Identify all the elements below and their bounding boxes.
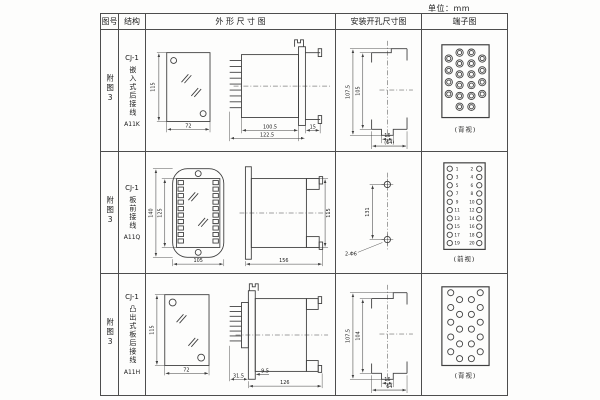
svg-text:17: 17: [454, 232, 460, 237]
terminal-drawing-cell: (背视): [422, 274, 508, 396]
outline-drawing-cell: 115 72 100.5: [146, 30, 336, 152]
terminal-screws: [445, 49, 486, 110]
svg-text:12: 12: [469, 207, 475, 212]
dim-notch-width: 16: [384, 377, 390, 383]
header-structure: 结构: [119, 14, 146, 30]
dim-side-height: 115: [326, 208, 332, 217]
side-view: 156 115: [240, 166, 332, 265]
terminal-drawing-a11q: 1 3 5 7 9 11 13 15 17 19 2 4 6 8 10: [422, 153, 507, 273]
dim-front-width: 72: [183, 367, 189, 373]
outline-drawing-a11k: 115 72 100.5: [146, 31, 335, 151]
fig-no-cell: 附图3: [101, 274, 119, 396]
terminal-strips: [178, 180, 218, 243]
structure-cell: CJ-1 嵌入式后接线 A11K: [119, 30, 146, 152]
dim-cutout-outer-height: 107.5: [345, 84, 351, 98]
outline-drawing-a11q: 140 125 105: [146, 153, 335, 273]
model-code-label: A11Q: [124, 234, 140, 241]
dim-hole-spacing: 131: [365, 207, 371, 216]
dim-front-height: 115: [150, 82, 156, 91]
dim-cutout-outer-height: 107.5: [345, 328, 351, 342]
model-code-label: A11H: [124, 369, 140, 376]
dim-flange-offset: 9.5: [261, 368, 269, 374]
svg-text:8: 8: [471, 191, 474, 196]
svg-text:18: 18: [469, 232, 475, 237]
dim-depth-body: 100.5: [263, 124, 277, 130]
dim-flange-thickness: 15: [310, 124, 316, 130]
header-row: 图号 结构 外 形 尺 寸 图 安装开孔尺寸图 端子图: [101, 14, 508, 30]
mounting-drawing-a11q: 131 2-Φ6: [336, 153, 421, 273]
svg-text:15: 15: [454, 224, 460, 229]
terminal-screws: [448, 289, 484, 361]
svg-text:3: 3: [456, 174, 459, 179]
model-label: CJ-1: [125, 293, 139, 301]
header-terminal-diagram: 端子图: [422, 14, 508, 30]
terminal-drawing-a11h: (背视): [422, 275, 507, 395]
dim-pin-length: 31.5: [233, 373, 244, 379]
fig-no-label: 附图3: [105, 318, 113, 348]
structure-cell: CJ-1 凸出式板后接线 A11H: [119, 274, 146, 396]
mounting-type-label: 嵌入式后接线: [128, 66, 136, 117]
dim-depth-total: 122.5: [260, 132, 274, 138]
mounting-type-label: 板前接线: [128, 196, 136, 230]
svg-text:1: 1: [456, 166, 459, 171]
terminal-numbers-right: 2 4 6 8 10 12 14 16 18 20: [469, 166, 475, 245]
front-view: 115 72: [150, 52, 210, 132]
structure-cell: CJ-1 板前接线 A11Q: [119, 152, 146, 274]
terminal-view-label: (背视): [455, 370, 477, 379]
header-fig-no: 图号: [101, 14, 119, 30]
model-label: CJ-1: [125, 54, 139, 62]
outline-drawing-cell: 115 72 3: [146, 274, 336, 396]
terminal-screws: [447, 166, 482, 246]
terminal-view-label: (前视): [454, 254, 476, 263]
dim-cutout-inner-height: 105: [355, 86, 361, 95]
dimension-table: 图号 结构 外 形 尺 寸 图 安装开孔尺寸图 端子图 附图3 CJ-1 嵌入式…: [100, 13, 508, 396]
dim-depth: 126: [280, 380, 289, 386]
terminal-drawing-cell: 1 3 5 7 9 11 13 15 17 19 2 4 6 8 10: [422, 152, 508, 274]
table-row-a11h: 附图3 CJ-1 凸出式板后接线 A11H: [101, 274, 508, 396]
svg-text:6: 6: [471, 182, 474, 187]
mounting-drawing-cell: 107.5 105 16 (64): [336, 30, 422, 152]
header-mounting-holes: 安装开孔尺寸图: [336, 14, 422, 30]
svg-text:9: 9: [456, 199, 459, 204]
outline-drawing-a11h: 115 72 3: [146, 275, 335, 395]
mounting-type-label: 凸出式板后接线: [128, 305, 136, 365]
side-view: 31.5 9.5 126: [230, 283, 328, 387]
model-label: CJ-1: [125, 184, 139, 192]
svg-text:2: 2: [471, 166, 474, 171]
fig-no-label: 附图3: [105, 196, 113, 226]
svg-text:20: 20: [469, 240, 475, 245]
dim-cutout-inner-height: 104: [355, 331, 361, 340]
svg-text:19: 19: [454, 240, 460, 245]
dim-front-width: 72: [185, 123, 191, 129]
dim-front-width: 105: [194, 258, 203, 264]
svg-text:14: 14: [469, 215, 475, 220]
mounting-drawing-cell: 131 2-Φ6: [336, 152, 422, 274]
svg-text:16: 16: [469, 224, 475, 229]
front-view: 140 125 105: [148, 168, 223, 265]
terminal-drawing-a11k: (背视): [422, 31, 507, 151]
mounting-drawing-a11h: 107.5 104 16 64: [336, 275, 421, 395]
mounting-drawing-a11k: 107.5 105 16 (64): [336, 31, 421, 151]
fig-no-cell: 附图3: [101, 152, 119, 274]
front-view: 115 72: [149, 294, 209, 375]
hole-callout-label: 2-Φ6: [345, 251, 357, 257]
svg-text:5: 5: [456, 182, 459, 187]
svg-text:7: 7: [456, 191, 459, 196]
dim-front-outer-height: 140: [148, 208, 154, 217]
table-row-a11q: 附图3 CJ-1 板前接线 A11Q: [101, 152, 508, 274]
dim-cutout-width: (64): [384, 140, 394, 146]
fig-no-label: 附图3: [105, 74, 113, 104]
terminal-drawing-cell: (背视): [422, 30, 508, 152]
svg-text:11: 11: [454, 207, 460, 212]
terminal-view-label: (背视): [455, 124, 477, 133]
dim-notch-width: 16: [384, 133, 390, 139]
model-code-label: A11K: [124, 121, 140, 128]
dim-depth: 156: [279, 258, 288, 264]
fig-no-cell: 附图3: [101, 30, 119, 152]
svg-text:4: 4: [471, 174, 474, 179]
header-outline-dims: 外 形 尺 寸 图: [146, 14, 336, 30]
table-row-a11k: 附图3 CJ-1 嵌入式后接线 A11K: [101, 30, 508, 152]
terminal-numbers-left: 1 3 5 7 9 11 13 15 17 19: [454, 166, 460, 245]
dim-front-inner-height: 125: [157, 208, 163, 217]
dim-front-height: 115: [149, 325, 155, 334]
side-view: 100.5 122.5 15: [230, 39, 330, 140]
mounting-drawing-cell: 107.5 104 16 64: [336, 274, 422, 396]
svg-text:10: 10: [469, 199, 475, 204]
svg-text:13: 13: [454, 215, 460, 220]
dim-cutout-width: 64: [386, 384, 392, 390]
outline-drawing-cell: 140 125 105: [146, 152, 336, 274]
